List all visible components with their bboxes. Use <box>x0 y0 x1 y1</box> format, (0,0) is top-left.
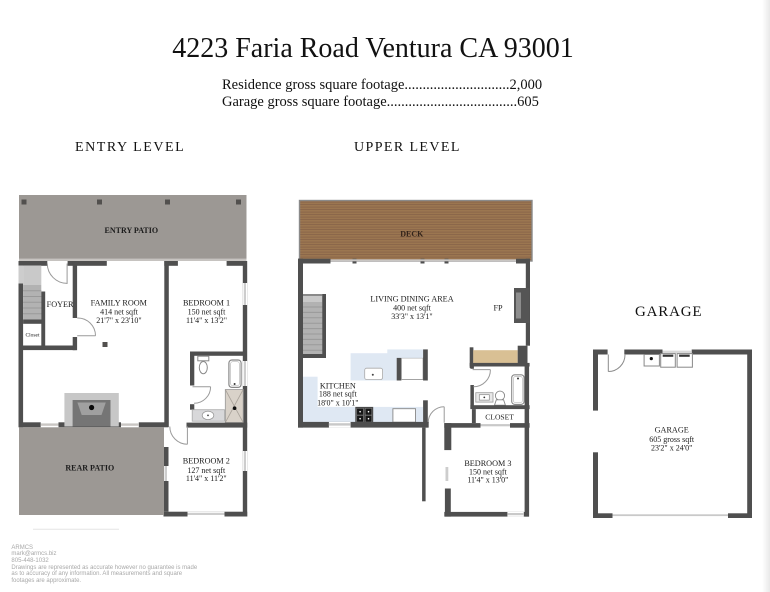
svg-text:18'0" x 10'1": 18'0" x 10'1" <box>317 398 358 407</box>
svg-text:33'3" x 13'1": 33'3" x 13'1" <box>391 312 432 321</box>
svg-text:CLOSET: CLOSET <box>485 413 514 422</box>
svg-text:BEDROOM 2: BEDROOM 2 <box>183 457 230 466</box>
svg-text:DECK: DECK <box>400 229 424 238</box>
svg-text:Closet: Closet <box>25 333 40 339</box>
svg-text:11'4" x 11'2": 11'4" x 11'2" <box>186 474 227 483</box>
svg-text:BEDROOM 1: BEDROOM 1 <box>183 298 230 307</box>
svg-text:ENTRY PATIO: ENTRY PATIO <box>105 226 159 235</box>
svg-text:11'4" x 13'0": 11'4" x 13'0" <box>467 476 508 485</box>
svg-text:FOYER: FOYER <box>47 300 74 309</box>
svg-text:LIVING DINING AREA: LIVING DINING AREA <box>370 295 453 304</box>
svg-text:REAR PATIO: REAR PATIO <box>65 463 114 472</box>
svg-text:11'4" x 13'2": 11'4" x 13'2" <box>186 316 227 325</box>
svg-text:FAMILY ROOM: FAMILY ROOM <box>91 298 148 307</box>
svg-text:GARAGE: GARAGE <box>655 426 689 435</box>
svg-text:21'7" x 23'10": 21'7" x 23'10" <box>96 316 141 325</box>
svg-text:23'2" x 24'0": 23'2" x 24'0" <box>651 443 692 452</box>
svg-text:FP: FP <box>493 304 503 313</box>
